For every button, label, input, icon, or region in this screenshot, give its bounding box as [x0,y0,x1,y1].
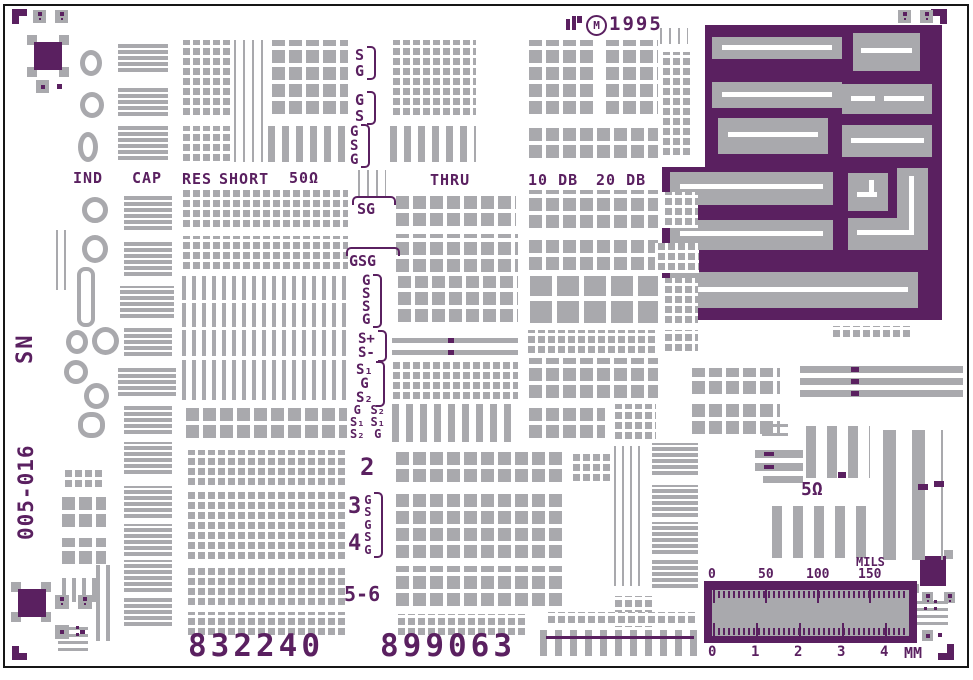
alignment-mark-square [898,10,911,23]
pattern-block-pads-md [525,40,597,118]
layout-rect [764,465,774,469]
pattern-block-pads-md [268,40,348,118]
layout-rect [851,96,875,101]
ruler-mils-tick-0: 0 [708,567,716,582]
part-number-label: 005-016 [14,444,38,540]
layout-rect [857,230,914,235]
layout-rect [924,607,927,610]
alignment-mark-square [33,10,46,23]
pattern-block-pads-sm [612,404,656,442]
pattern-block-pads-sm [390,360,518,402]
probe-config-sg-pair: S G [355,46,376,80]
probe-config-gsg-inline: GSG [349,252,376,270]
layout-rect [577,16,582,23]
right-bracket [378,330,387,362]
pattern-block-vbars-md [268,126,348,162]
pattern-block-vbars-thin [614,446,646,586]
inductor-loop [80,92,104,118]
pad-label: G [374,428,381,440]
inductor-loop [80,50,102,76]
pad-label: S [350,139,358,153]
alignment-mark-square [944,592,955,603]
pad-label: S₂ [350,428,364,440]
pattern-block-pads-md [392,566,562,610]
accent-rect [838,472,846,478]
pad-label: G [362,314,370,327]
inductor-loop [64,360,88,384]
layout-rect [392,338,518,343]
pattern-block-vbars-sm [96,565,112,641]
layout-rect [722,45,832,50]
layout-rect [764,452,774,456]
probe-config-gs-pair: G S [355,91,376,125]
inductor-loop [82,235,108,263]
layout-rect [857,192,877,197]
pattern-block-vbars-sm [182,303,347,327]
alignment-dot-square [36,80,49,93]
layout-rect [916,615,948,618]
label-cap: CAP [132,169,162,187]
pattern-block-vbars-xl [883,430,943,560]
pattern-block-pads-md [394,276,518,326]
pattern-block-cap [118,86,168,118]
right-bracket [376,361,385,407]
pattern-block-pads-md [392,450,562,486]
pad-label: S [364,506,371,519]
ruler-mils-unit: MILS [856,555,885,569]
pattern-block-pads-md [525,126,658,162]
layout-rect [884,96,924,101]
pattern-block-vlines [234,40,264,162]
label-ind: IND [73,169,103,187]
pattern-block-cap [118,42,168,74]
pattern-block-cap [124,328,172,358]
accent-rect [918,484,928,490]
inductor-loop [78,412,105,438]
circled-m-mark: M [586,15,607,36]
pattern-block-pads-md [525,236,658,274]
ruler-mils-tick-150: 150 [858,567,881,582]
ruler-mm-tick-0: 0 [708,644,716,660]
layout-rect [34,42,62,70]
inductor-loop [77,267,95,327]
pattern-block-pads-md [688,368,780,398]
pad-label: S [355,47,364,63]
inductor-loop [92,327,119,355]
layout-rect [763,476,803,483]
alignment-dot-square [922,630,933,641]
layout-rect [916,608,948,611]
right-bracket [367,91,376,125]
layout-rect [861,48,912,53]
layout-rect [728,132,818,137]
probe-config-splus-sminus: S+ S- [358,330,387,362]
right-bracket [374,492,383,558]
pattern-block-pads-sm [185,566,345,608]
inductor-loop [84,383,109,409]
pad-label: G [360,377,368,391]
alignment-mark-square [55,595,69,609]
layout-rect [12,9,19,24]
layout-rect [76,633,79,636]
pattern-block-hlines [762,418,788,436]
pattern-block-vbars-md [392,404,516,442]
pattern-block-pads-sm [525,330,658,356]
ruler-mm-tick-3: 3 [837,644,845,660]
alignment-mark-square [920,10,933,23]
pattern-block-cap [124,486,172,520]
pattern-block-cap [124,560,172,594]
pattern-block-vbars-sm [182,330,347,356]
row-number-4: 4 [348,531,361,556]
pattern-block-pads-sm [180,126,232,164]
pattern-block-pads-sm [660,52,690,158]
iss-calibration-substrate-layout: M 1995 SN 005-016 IND CAP RES SHORT 50Ω … [0,0,973,680]
label-thru: THRU [430,171,470,189]
pattern-block-cap [652,522,698,556]
pattern-block-cap [124,404,172,436]
layout-rect [800,378,963,385]
label-5ohm: 5Ω [801,479,823,500]
pattern-block-pads-sm [662,330,698,354]
pattern-block-pads-sm [185,490,345,562]
pattern-block-pads-sm [570,452,610,484]
layout-rect [722,92,832,97]
layout-rect [57,84,62,89]
pad-label: S [355,108,364,124]
ruler-mm-tick-1: 1 [751,644,759,660]
alignment-mark-square [55,10,68,23]
layout-rect [680,287,908,292]
right-bracket [361,124,370,168]
pattern-block-cap [124,442,172,476]
pattern-block-ticks [713,628,908,635]
layout-rect [851,379,859,384]
pad-label: S+ [358,332,375,346]
probe-config-dual-columns: G S₁ S₂ S₂ S₁ G [350,404,385,440]
layout-rect [58,648,88,651]
year-label: 1995 [609,13,663,35]
pattern-block-cap [124,598,172,628]
pad-label: G [355,92,364,108]
layout-rect [934,600,937,603]
pattern-block-pads-md [58,495,106,531]
probe-config-gsg: G S G [350,124,370,168]
ruler-mm-tick-4: 4 [880,644,888,660]
right-bracket [367,46,376,80]
label-short: SHORT [219,170,269,188]
layout-rect [851,367,859,372]
alignment-dot-square [55,625,69,639]
pad-label: S [364,531,371,544]
pattern-block-pads-md [58,538,106,568]
pattern-block-ticks [713,591,908,598]
pattern-block-vbars-sm [182,360,347,400]
probe-config-sg-inline: SG [357,200,375,218]
pattern-block-pads-md [602,40,658,118]
pattern-block-pads-md [525,358,658,402]
pattern-block-cap [124,240,172,278]
layout-rect [800,390,963,397]
m-letter: M [593,19,600,32]
serial-number-right: 899063 [380,628,516,664]
layout-rect [851,391,859,396]
layout-rect [938,633,942,637]
layout-rect [12,653,27,660]
right-bracket [373,274,382,328]
inductor-loop [82,197,108,223]
pattern-block-pads-sm [62,468,102,490]
pattern-block-pads-sm [830,326,910,340]
pattern-block-vbars-md [390,126,476,162]
pattern-block-vbars-thin [56,230,72,290]
label-10db: 10 DB [528,171,578,189]
pattern-block-pads-sm [655,243,699,273]
layout-rect [18,589,46,617]
layout-rect [755,463,803,471]
layout-rect [851,138,924,143]
layout-rect [869,180,874,197]
pattern-block-pads-md [525,404,605,442]
row-number-2: 2 [360,453,374,481]
pattern-block-pads-sm [545,612,695,626]
layout-rect [934,607,937,610]
layout-rect [448,350,454,355]
pad-label: G [364,544,371,557]
pad-label: G [355,63,364,79]
pattern-block-cap [652,558,698,590]
ruler-mils-tick-100: 100 [806,567,829,582]
pattern-block-vbars-lg [806,426,870,478]
pattern-block-pads-sm [662,278,698,326]
layout-rect [920,556,946,586]
pattern-block-pads-sm [180,236,348,272]
accent-rect [934,481,944,487]
pattern-block-cap [118,366,176,398]
pattern-block-pads-sm [662,192,698,228]
serial-number-heading: SN [13,334,38,365]
alignment-mark-square [78,595,92,609]
pattern-block-pads-md [525,190,658,232]
ruler-mils-tick-50: 50 [758,567,774,582]
pattern-block-cap [124,194,172,232]
pattern-block-pads-md [392,490,562,562]
pattern-block-pads-sm [180,190,348,230]
serial-number-left: 832240 [188,628,324,664]
layout-rect [76,626,79,629]
label-res: RES [182,170,212,188]
ruler-mm-tick-2: 2 [794,644,802,660]
layout-rect [566,19,570,30]
layout-rect [448,338,454,343]
pattern-block-cap [118,126,168,162]
layout-rect [392,350,518,355]
layout-rect [909,176,914,235]
pad-label: G [350,153,358,167]
pattern-block-pads-md [182,404,347,442]
layout-rect [755,450,803,458]
pattern-block-pads-md [392,234,518,276]
label-20db: 20 DB [596,171,646,189]
pattern-block-pads-lg [525,276,658,328]
pattern-block-pads-sm [390,40,476,118]
pattern-block-vbars-sm [182,276,347,300]
pad-label: S₁ [356,363,373,377]
inductor-loop [66,330,88,354]
pattern-block-vlines [358,170,386,196]
pattern-block-comb [540,630,700,656]
layout-rect [58,641,88,644]
pattern-block-cap [652,443,698,477]
layout-rect [940,9,947,24]
probe-config-s1gs2: S₁ G S₂ [356,361,385,407]
layout-rect [680,184,823,189]
layout-rect [800,366,963,373]
pattern-block-pads-md [392,194,516,230]
pattern-block-cap [652,485,698,519]
pattern-block-cap [120,286,174,320]
pad-label: S- [358,346,375,360]
layout-rect [572,16,576,30]
pattern-block-pads-sm [180,40,232,118]
pattern-block-vlines [660,28,688,44]
probe-config-gssg: G S S G [362,274,382,328]
row-number-5-6: 5-6 [344,582,380,606]
label-50ohm: 50Ω [289,169,319,187]
pad-label: G [350,125,358,139]
alignment-mark-square [922,592,933,603]
pattern-block-pads-sm [185,450,345,488]
accent-rect [546,636,694,639]
layout-rect [680,231,823,236]
layout-rect [916,622,948,625]
probe-config-rows-3-4: 3 4 G S G S G [348,492,383,558]
inductor-loop [78,132,98,162]
pattern-block-cap [124,524,172,558]
row-number-3: 3 [348,494,361,519]
pattern-block-vbars-lg [772,506,872,558]
ruler-mm-unit: MM [904,644,922,662]
layout-rect [938,653,954,660]
